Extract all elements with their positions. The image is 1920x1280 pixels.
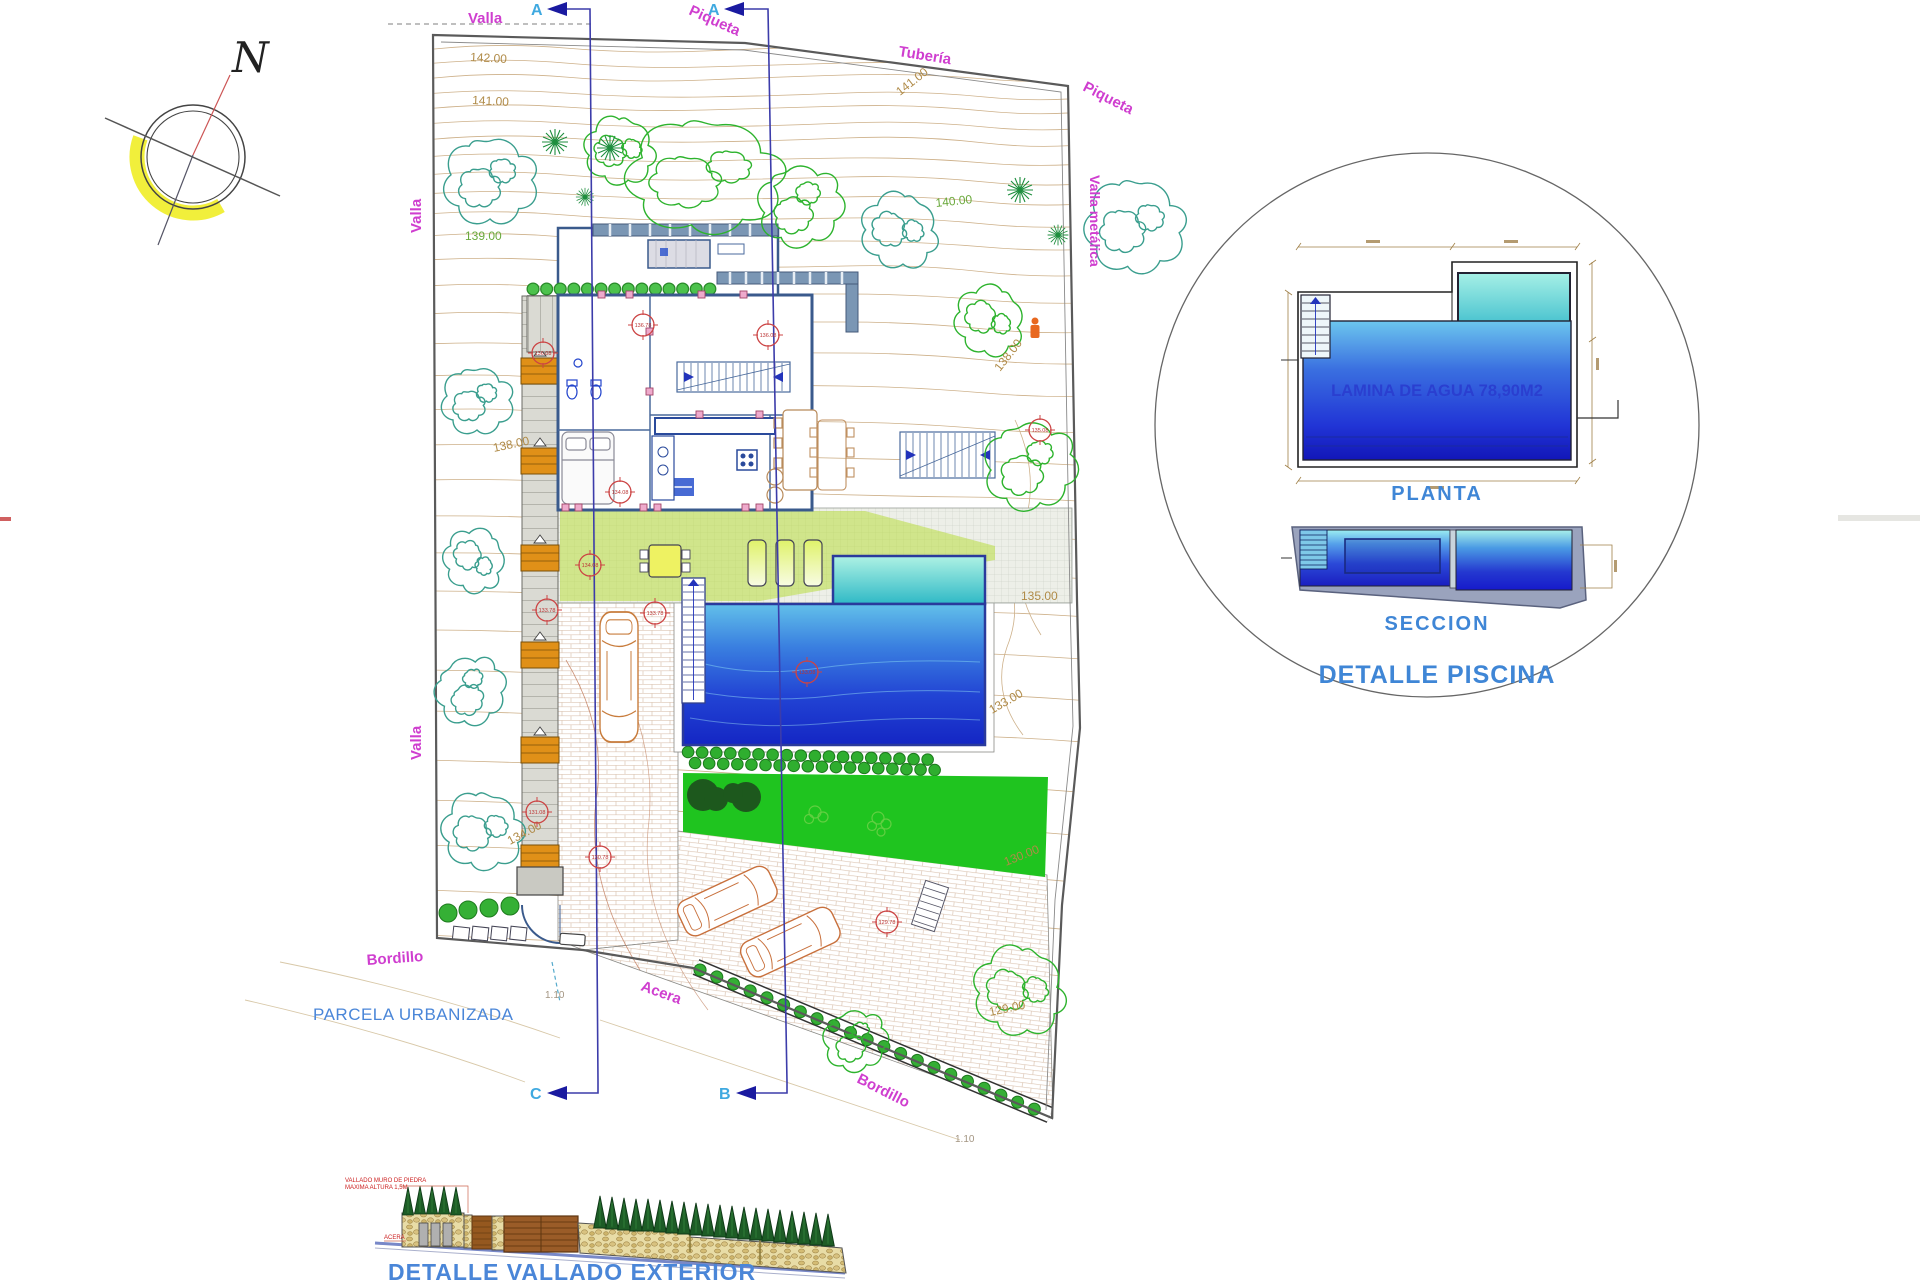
section-arrow bbox=[736, 1086, 756, 1100]
seccion-label: SECCION bbox=[1384, 613, 1489, 635]
label-valla-left-lower: Valla bbox=[408, 725, 425, 760]
section-marker-a1: A bbox=[531, 2, 543, 19]
fence-detail-title: DETALLE VALLADO EXTERIOR bbox=[388, 1259, 756, 1280]
section-marker-b: B bbox=[719, 1086, 731, 1103]
utility-door bbox=[419, 1223, 428, 1246]
svg-text:135.08: 135.08 bbox=[1032, 428, 1049, 434]
dim-label: 1.10 bbox=[545, 990, 565, 1001]
pool-detail-seccion: SECCION bbox=[1281, 527, 1617, 635]
svg-text:133.78: 133.78 bbox=[539, 608, 556, 614]
svg-text:130.78: 130.78 bbox=[592, 855, 609, 861]
svg-text:136.08: 136.08 bbox=[760, 333, 777, 339]
section-arrow bbox=[724, 2, 744, 16]
svg-text:133.08: 133.08 bbox=[799, 670, 816, 676]
detail-pool-stairs bbox=[1301, 295, 1330, 358]
pool-detail-planta: LAMINA DE AGUA 78,90M2 PLANTA bbox=[1281, 240, 1618, 505]
label-parcela-urbanizada: PARCELA URBANIZADA bbox=[313, 1005, 514, 1024]
utility-door bbox=[443, 1223, 452, 1246]
fence-acera: ACERA bbox=[384, 1235, 406, 1241]
label-piqueta-right: Piqueta bbox=[1080, 78, 1137, 118]
section-arrow bbox=[547, 1086, 567, 1100]
utility-door bbox=[431, 1223, 440, 1246]
svg-text:129.78: 129.78 bbox=[879, 920, 896, 926]
spa bbox=[833, 556, 985, 604]
north-compass: N bbox=[105, 33, 280, 245]
contour-label: 141.00 bbox=[893, 65, 931, 99]
label-bordillo-right: Bordillo bbox=[854, 1070, 912, 1111]
svg-text:131.08: 131.08 bbox=[529, 810, 546, 816]
swimming-pool bbox=[683, 604, 985, 745]
north-label: N bbox=[231, 33, 270, 82]
contour-label: 141.00 bbox=[472, 93, 510, 109]
interior-stairs bbox=[677, 362, 790, 392]
fence-acera-label: ACERA bbox=[384, 1235, 405, 1241]
section-arrow bbox=[547, 2, 567, 16]
garden-steps bbox=[517, 296, 563, 895]
pool-detail: LAMINA DE AGUA 78,90M2 PLANTA SECCION DE… bbox=[1155, 153, 1699, 697]
pool-detail-title: DETALLE PISCINA bbox=[1319, 661, 1556, 689]
hydrant-figure bbox=[1031, 318, 1040, 339]
contour-label: 135.00 bbox=[1021, 589, 1058, 603]
svg-text:133.78: 133.78 bbox=[647, 611, 664, 617]
fence-note-line2: MAXIMA ALTURA 1,5M bbox=[345, 1185, 408, 1191]
label-valla-metalica: Valla metálica bbox=[1087, 175, 1103, 267]
seccion-stairs bbox=[1300, 530, 1327, 569]
dim-label: 1.10 bbox=[955, 1134, 975, 1145]
contour-label: 138.00 bbox=[991, 336, 1025, 374]
section-marker-c: C bbox=[530, 1086, 542, 1103]
sun-loungers bbox=[748, 540, 822, 586]
svg-text:134.08: 134.08 bbox=[582, 563, 599, 569]
svg-text:134.08: 134.08 bbox=[612, 490, 629, 496]
svg-text:136.78: 136.78 bbox=[635, 323, 652, 329]
exterior-stairs bbox=[900, 432, 995, 478]
planta-label: PLANTA bbox=[1391, 483, 1483, 505]
bed bbox=[562, 432, 614, 504]
water-area-label: LAMINA DE AGUA 78,90M2 bbox=[1331, 382, 1543, 400]
contour-label: 142.00 bbox=[470, 50, 508, 66]
fence-elevation: VALLADO MURO DE PIEDRA MAXIMA ALTURA 1,5… bbox=[345, 1178, 846, 1280]
label-bordillo-left: Bordillo bbox=[366, 948, 424, 969]
label-valla-top: Valla bbox=[468, 10, 503, 27]
pool-steps bbox=[682, 578, 705, 703]
site-plan-drawing: A A C B Valla Piqueta Tubería Piqueta Va… bbox=[0, 0, 1920, 1280]
contour-label: 140.00 bbox=[935, 192, 973, 210]
svg-text:136.08: 136.08 bbox=[535, 351, 552, 357]
level-marker: 135.08 bbox=[1025, 415, 1055, 445]
label-valla-left-upper: Valla bbox=[408, 198, 425, 233]
fence-note-line1: VALLADO MURO DE PIEDRA bbox=[345, 1178, 426, 1184]
contour-label: 139.00 bbox=[465, 229, 502, 243]
